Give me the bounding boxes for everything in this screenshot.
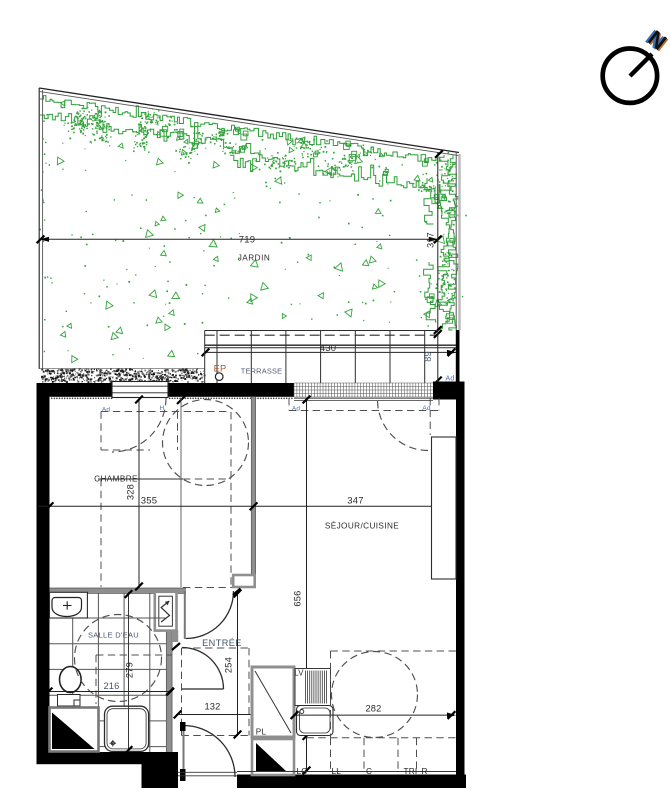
svg-text:216: 216 [103,681,119,691]
svg-text:132: 132 [204,702,220,712]
svg-text:SÉJOUR/CUISINE: SÉJOUR/CUISINE [325,521,399,531]
svg-text:656: 656 [293,590,303,606]
svg-text:TRI: TRI [404,767,418,776]
svg-text:ENTRÉE: ENTRÉE [202,638,242,648]
svg-text:Ad: Ad [292,406,301,413]
svg-text:C: C [366,767,372,776]
svg-text:347: 347 [347,496,363,507]
svg-text:CHAMBRE: CHAMBRE [94,475,138,484]
svg-text:279: 279 [125,662,135,678]
svg-text:Ad: Ad [446,376,455,383]
svg-text:282: 282 [365,704,381,714]
svg-text:317: 317 [426,232,436,248]
svg-text:PL: PL [256,728,267,737]
svg-text:254: 254 [224,657,234,673]
svg-text:430: 430 [320,343,336,354]
svg-text:LC: LC [297,767,308,776]
svg-text:H: H [160,405,165,412]
svg-text:719: 719 [239,235,255,246]
svg-text:LV: LV [294,669,304,678]
svg-text:SALLE D'EAU: SALLE D'EAU [88,631,139,640]
svg-text:328: 328 [126,484,136,500]
svg-text:LL: LL [332,767,342,776]
svg-text:355: 355 [141,496,157,507]
svg-text:EP: EP [214,364,227,374]
svg-text:Ad: Ad [102,407,111,414]
svg-text:JARDIN: JARDIN [238,254,271,263]
svg-text:89: 89 [423,351,433,361]
svg-text:TERRASSE: TERRASSE [241,367,282,376]
svg-text:R: R [422,767,428,776]
